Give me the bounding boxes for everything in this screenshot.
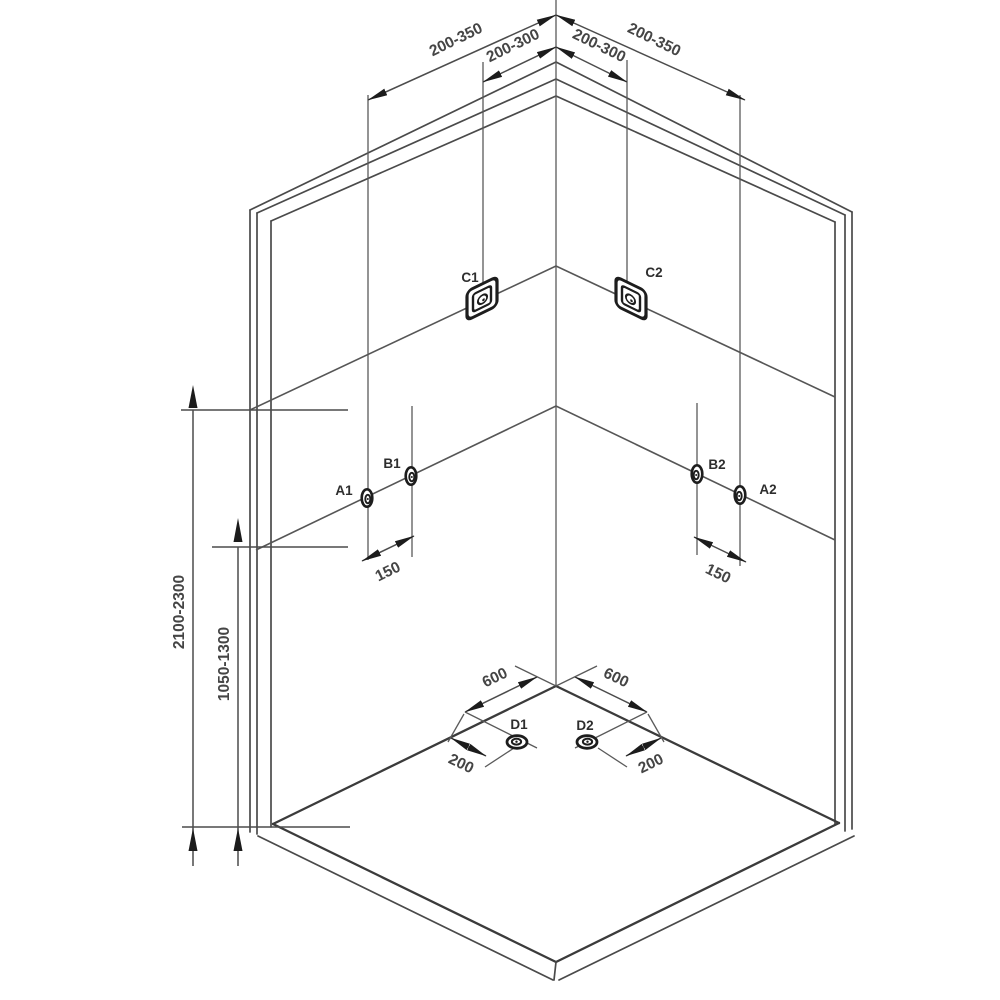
- dim-height-upper-label: 2100-2300: [171, 575, 188, 649]
- fixture-d1: D1: [507, 717, 528, 748]
- dim-floor-left-label: 600: [480, 665, 511, 692]
- fixture-b2-label: B2: [708, 457, 725, 472]
- fixture-c1-label: C1: [461, 270, 479, 285]
- wall-band-lines: [250, 266, 835, 550]
- fixture-a2: A2: [735, 482, 777, 504]
- fixture-d2: D2: [576, 718, 597, 748]
- dim-offset-left-label: 200: [446, 751, 477, 778]
- dim-offset-right-label: 200: [636, 751, 667, 778]
- dim-top-left-outer-label: 200-350: [427, 20, 486, 60]
- dim-top-right-outer-label: 200-350: [625, 20, 684, 60]
- dim-top-right-inner-label: 200-300: [570, 26, 629, 66]
- height-dimensions: 2100-2300 1050-1300: [171, 385, 350, 866]
- jet-spacing-dimensions: 150 150: [362, 536, 746, 587]
- dim-height-mid-label: 1050-1300: [216, 627, 233, 701]
- dim-spacing-left-label: 150: [373, 559, 404, 586]
- right-wall: [556, 62, 852, 831]
- installation-diagram: 200-350 200-300 200-300 200-350 2100-230…: [0, 0, 1000, 1000]
- dim-spacing-right-label: 150: [703, 561, 734, 588]
- fixture-c1: C1: [461, 270, 497, 320]
- fixture-d1-label: D1: [510, 717, 528, 732]
- dim-floor-right-label: 600: [601, 665, 632, 692]
- shower-tray: [258, 686, 854, 980]
- extension-lines: [368, 60, 740, 566]
- fixture-a2-label: A2: [759, 482, 776, 497]
- dim-top-left-inner-label: 200-300: [484, 26, 543, 66]
- fixture-b1-label: B1: [383, 456, 401, 471]
- fixture-a1-label: A1: [335, 483, 353, 498]
- fixture-d2-label: D2: [576, 718, 593, 733]
- fixture-c2-label: C2: [645, 265, 662, 280]
- diagram-page: 200-350 200-300 200-300 200-350 2100-230…: [0, 0, 1000, 1000]
